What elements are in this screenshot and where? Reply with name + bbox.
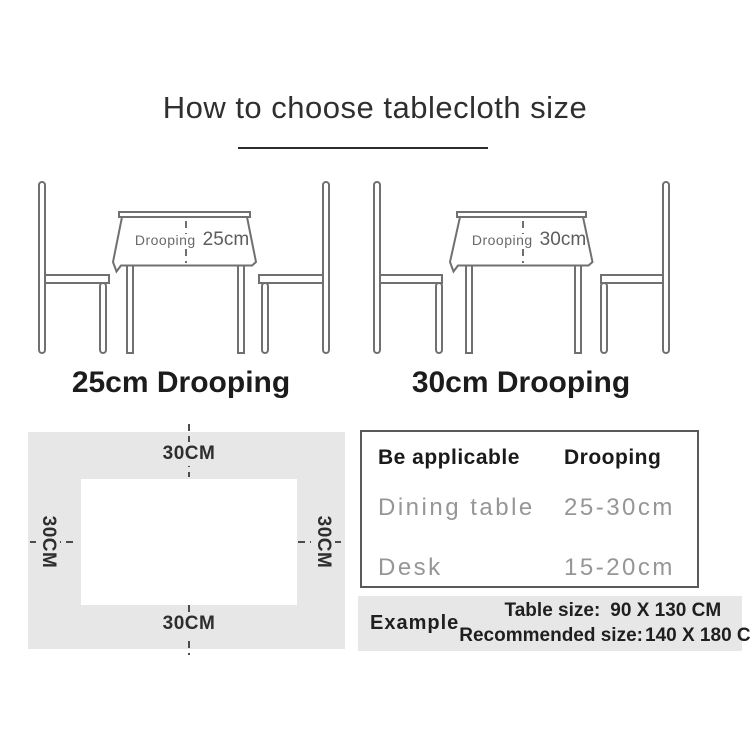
spec-cell-dining-table: Dining table xyxy=(378,494,535,522)
table-size-value: 90 X 130 CM xyxy=(610,600,721,621)
example-lines: Table size:90 X 130 CM Recommended size:… xyxy=(459,600,750,647)
droop-annotation: Drooping 25cm xyxy=(135,229,249,251)
dimension-label-left: 30CM xyxy=(36,511,60,574)
droop-word: Drooping xyxy=(472,232,533,248)
table-size-label: Table size: xyxy=(505,600,601,621)
title-underline xyxy=(238,147,488,149)
page-title: How to choose tablecloth size xyxy=(0,90,750,126)
spec-table: Be applicable Drooping Dining table 25-3… xyxy=(360,430,699,588)
example-recommended-line: Recommended size:140 X 180 CM xyxy=(459,625,750,647)
table-top-rect xyxy=(81,479,297,605)
example-table-size-line: Table size:90 X 130 CM xyxy=(505,600,722,622)
droop-word: Drooping xyxy=(135,232,196,248)
spec-cell-desk: Desk xyxy=(378,554,443,582)
table-with-tablecloth-drawing-25 xyxy=(20,172,360,357)
chair-left-icon xyxy=(374,182,442,353)
example-strip: Example Table size:90 X 130 CM Recommend… xyxy=(358,596,742,651)
illustration-30cm-drooping: Drooping 30cm xyxy=(372,172,712,357)
tablecloth-size-diagram: 30CM 30CM 30CM 30CM xyxy=(28,432,345,649)
spec-cell-desk-droop: 15-20cm xyxy=(564,554,675,582)
droop-value: 25cm xyxy=(203,229,249,251)
droop-value: 30cm xyxy=(540,229,586,251)
droop-annotation: Drooping 30cm xyxy=(472,229,586,251)
recommended-size-value: 140 X 180 CM xyxy=(645,625,750,646)
spec-cell-dining-droop: 25-30cm xyxy=(564,494,675,522)
illustration-25cm-drooping: Drooping 25cm xyxy=(20,172,360,357)
caption-25cm-drooping: 25cm Drooping xyxy=(20,366,342,400)
example-label: Example xyxy=(370,612,459,635)
chair-left-icon xyxy=(39,182,109,353)
caption-30cm-drooping: 30cm Drooping xyxy=(372,366,670,400)
spec-header-drooping: Drooping xyxy=(564,446,661,470)
dimension-label-right: 30CM xyxy=(311,511,335,574)
dimension-label-top: 30CM xyxy=(158,442,221,466)
recommended-size-label: Recommended size: xyxy=(459,625,643,646)
infographic-page: How to choose tablecloth size xyxy=(0,0,750,750)
chair-right-icon xyxy=(601,182,669,353)
table-with-tablecloth-drawing-30 xyxy=(372,172,712,357)
spec-header-applicable: Be applicable xyxy=(378,446,520,470)
dimension-label-bottom: 30CM xyxy=(158,612,221,636)
chair-right-icon xyxy=(259,182,329,353)
